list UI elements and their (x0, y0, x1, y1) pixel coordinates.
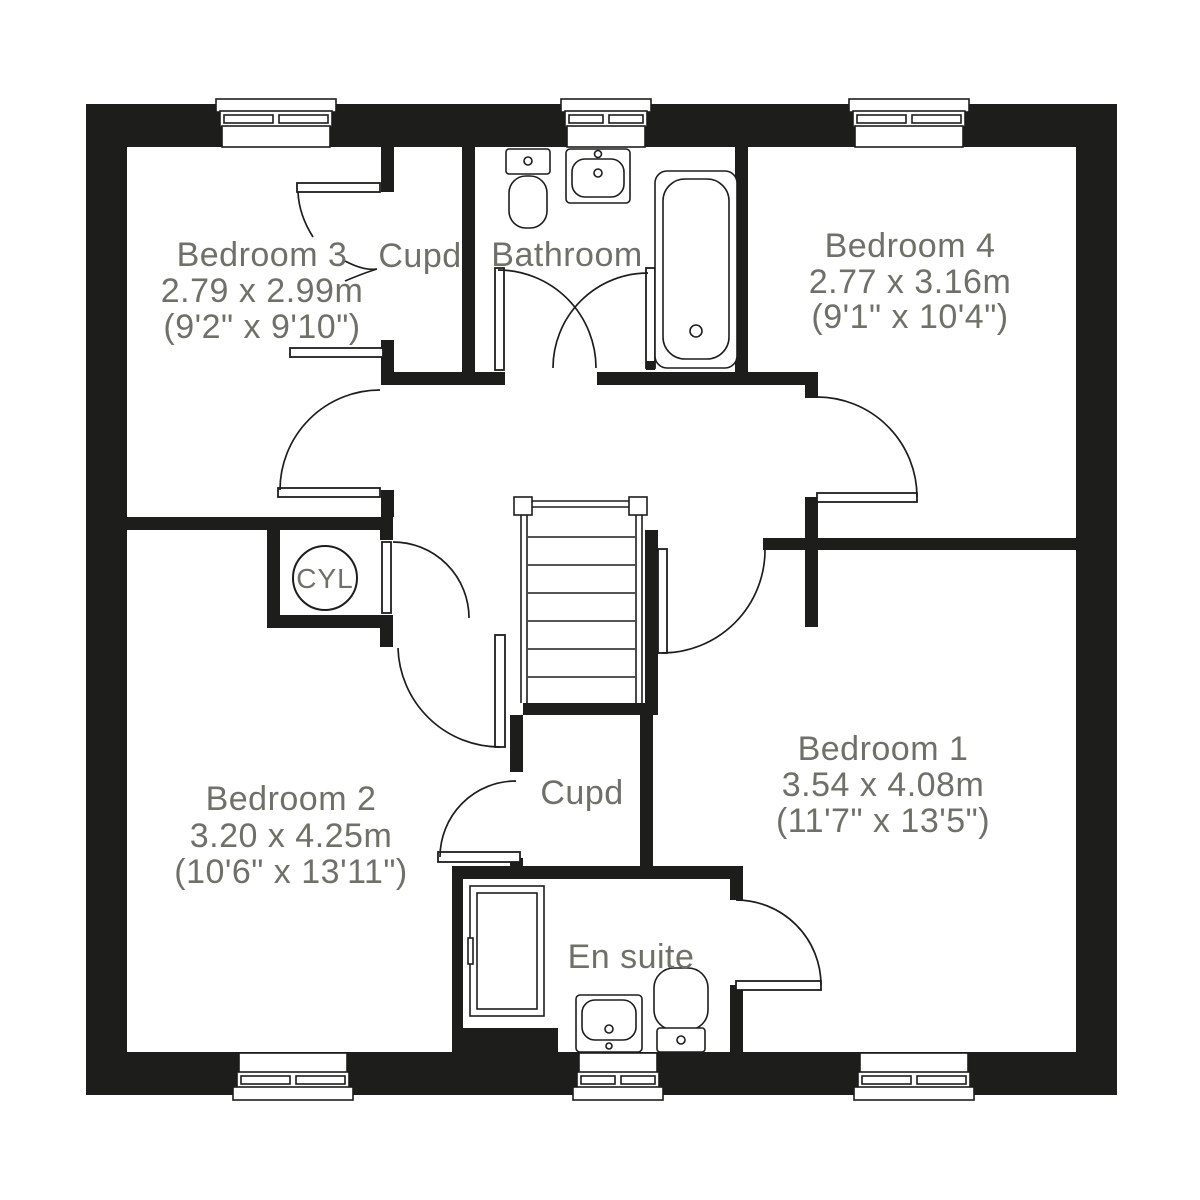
room-dim-metric-bedroom1: 3.54 x 4.08m (782, 766, 985, 804)
floor-plan-page: Bedroom 3 2.79 x 2.99m (9'2" x 9'10") Cu… (0, 0, 1200, 1200)
bedroom4-door-arc (817, 397, 917, 497)
window-bottom-left (233, 1053, 353, 1100)
bedroom3-door-leaf (278, 488, 380, 497)
room-dim-imperial-bedroom1: (11'7" x 13'5") (776, 802, 990, 840)
bathroom-sink (566, 149, 630, 203)
bathroom-door-leaf-left (495, 268, 504, 370)
room-dim-metric-bedroom4: 2.77 x 3.16m (809, 263, 1012, 301)
room-label-bedroom2: Bedroom 2 (206, 780, 377, 818)
room-labels: Bedroom 3 2.79 x 2.99m (9'2" x 9'10") Cu… (161, 227, 1012, 976)
cupd-top-shelf (290, 348, 383, 357)
room-label-bedroom4: Bedroom 4 (825, 227, 996, 265)
label-cylinder: CYL (296, 563, 353, 594)
cyl-door-arc (393, 542, 469, 618)
room-label-bedroom3: Bedroom 3 (177, 236, 348, 274)
cyl-door-leaf (382, 542, 391, 613)
cupd-top-door-arc (298, 192, 313, 237)
room-dim-imperial-bedroom4: (9'1" x 10'4") (811, 298, 1008, 336)
window-top-left (216, 99, 336, 147)
shower (468, 886, 544, 1016)
ensuite-sink (576, 995, 642, 1052)
ensuite-toilet (654, 968, 708, 1052)
room-dim-imperial-bedroom2: (10'6" x 13'11") (174, 853, 408, 891)
bathtub (655, 171, 737, 368)
bedroom3-door-arc (280, 390, 380, 490)
bathroom-door-arc-right (553, 273, 648, 368)
cupd-bottom-door-leaf (438, 852, 520, 862)
window-top-middle (561, 99, 651, 147)
stairs (514, 497, 647, 703)
bedroom1-door-leaf (658, 549, 667, 653)
floor-plan: Bedroom 3 2.79 x 2.99m (9'2" x 9'10") Cu… (0, 0, 1200, 1200)
room-dim-metric-bedroom3: 2.79 x 2.99m (161, 272, 364, 310)
window-top-right (849, 99, 969, 147)
bathroom-toilet (506, 149, 550, 228)
window-bottom-middle (573, 1053, 663, 1100)
bedroom2-door-arc (398, 648, 500, 747)
room-label-bedroom1: Bedroom 1 (798, 730, 969, 768)
bedroom1-door-arc (662, 550, 765, 653)
room-label-ensuite: En suite (568, 938, 695, 976)
room-label-bathroom: Bathroom (491, 236, 642, 274)
newel-post (514, 497, 532, 515)
bedroom4-door-leaf (817, 493, 917, 502)
room-dim-metric-bedroom2: 3.20 x 4.25m (190, 817, 393, 855)
cupd-top-door-leaf (297, 183, 380, 192)
room-dim-imperial-bedroom3: (9'2" x 9'10") (163, 308, 360, 346)
cupd-bottom-door-arc (440, 781, 516, 857)
bedroom2-door-leaf (495, 635, 505, 747)
newel-post (629, 497, 647, 515)
room-label-cupd-bottom: Cupd (540, 774, 623, 812)
room-label-cupd-top: Cupd (378, 237, 461, 275)
bathroom-door-arc-left (498, 270, 596, 368)
ensuite-door-arc (736, 900, 821, 985)
ensuite-door-leaf (736, 981, 821, 990)
bathroom-door-leaf-right (646, 268, 655, 368)
window-bottom-right (854, 1053, 974, 1100)
